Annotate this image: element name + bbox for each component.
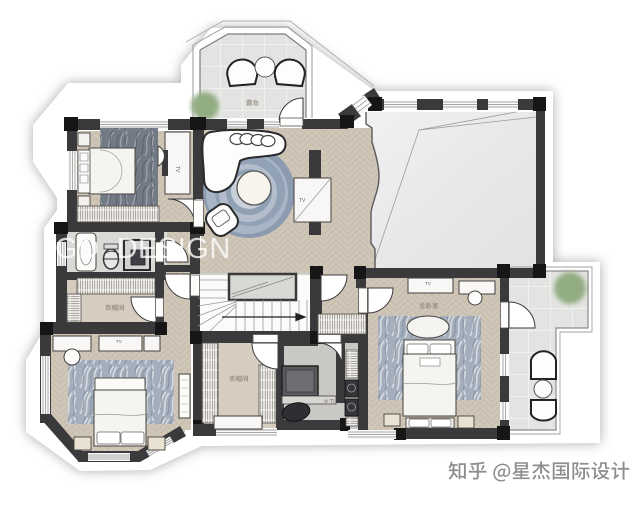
svg-text:TV: TV bbox=[174, 166, 180, 173]
svg-text:TV: TV bbox=[116, 339, 122, 344]
svg-text:GD DESIGN: GD DESIGN bbox=[55, 233, 231, 265]
svg-text:TV: TV bbox=[425, 281, 431, 286]
svg-text:TV: TV bbox=[299, 198, 306, 204]
